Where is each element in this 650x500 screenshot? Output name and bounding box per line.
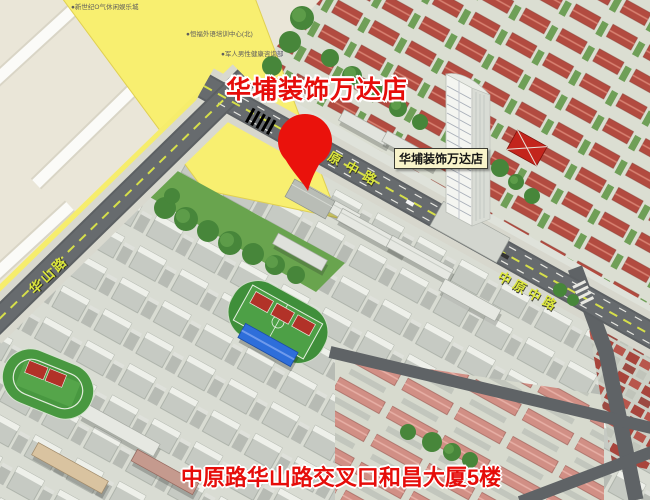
store-title-overlay: 华埔装饰万达店 xyxy=(226,70,408,106)
address-caption: 中原路华山路交叉口和昌大厦5楼 xyxy=(181,460,501,492)
map-viewport[interactable]: 华埔装饰万达店 华山路 原中路 中原中路 华埔装饰万达店 ●新世纪O气休闲娱乐城… xyxy=(0,0,650,500)
poi-small-label-c: ●军人男性健康咨询部 xyxy=(221,48,283,58)
poi-small-label-a: ●新世纪O气休闲娱乐城 xyxy=(71,1,138,11)
store-map-label[interactable]: 华埔装饰万达店 xyxy=(394,148,488,169)
poi-small-label-b: ●恒福外语培训中心(北) xyxy=(186,28,253,38)
